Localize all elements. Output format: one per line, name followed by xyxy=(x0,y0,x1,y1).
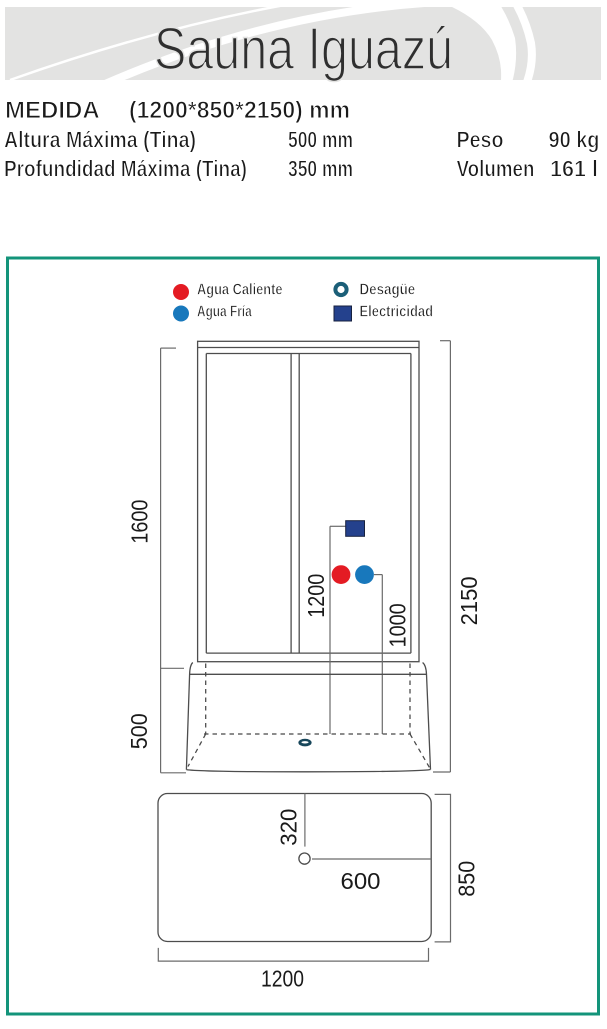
svg-text:600: 600 xyxy=(341,868,381,894)
svg-text:Altura Máxima (Tina): Altura Máxima (Tina) xyxy=(4,127,196,153)
svg-text:161 l: 161 l xyxy=(550,156,598,182)
svg-text:Sauna Iguazú: Sauna Iguazú xyxy=(154,16,453,82)
svg-text:1600: 1600 xyxy=(126,500,152,544)
svg-text:Profundidad Máxima (Tina): Profundidad Máxima (Tina) xyxy=(4,156,247,182)
svg-text:90 kg: 90 kg xyxy=(549,127,600,153)
svg-text:1000: 1000 xyxy=(385,603,411,647)
svg-text:500 mm: 500 mm xyxy=(288,127,353,153)
svg-text:MEDIDA: MEDIDA xyxy=(5,97,100,124)
svg-text:850: 850 xyxy=(454,861,480,897)
svg-text:Electricidad: Electricidad xyxy=(360,304,434,321)
svg-text:Desagüe: Desagüe xyxy=(360,282,416,299)
svg-text:Peso: Peso xyxy=(457,127,504,153)
svg-text:Agua Fría: Agua Fría xyxy=(197,304,252,321)
svg-text:Agua Caliente: Agua Caliente xyxy=(197,282,283,299)
svg-text:(1200*850*2150) mm: (1200*850*2150) mm xyxy=(129,97,350,124)
svg-text:2150: 2150 xyxy=(456,576,482,625)
svg-text:1200: 1200 xyxy=(261,966,304,992)
svg-text:320: 320 xyxy=(275,809,301,846)
svg-text:350 mm: 350 mm xyxy=(288,156,353,182)
svg-text:1200: 1200 xyxy=(303,574,329,618)
svg-text:500: 500 xyxy=(126,713,152,749)
svg-text:Volumen: Volumen xyxy=(457,156,535,182)
